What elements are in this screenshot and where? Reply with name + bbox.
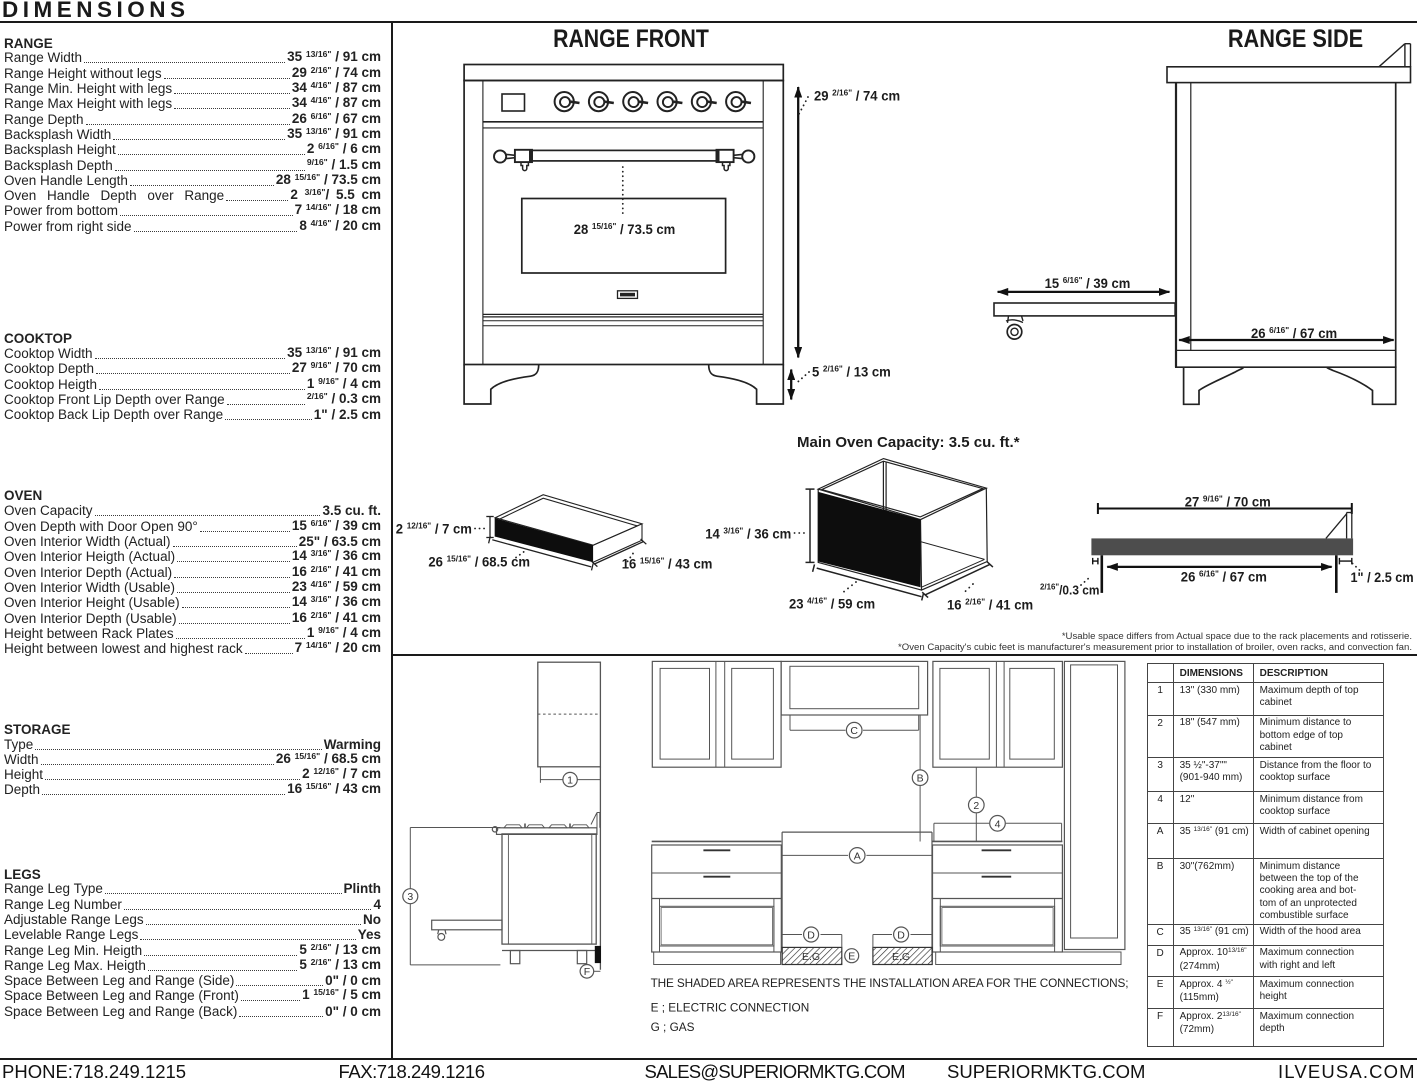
svg-text:Main Oven Capacity: 3.5 cu. ft: Main Oven Capacity: 3.5 cu. ft.* [797,434,1020,451]
svg-text:E.G: E.G [892,951,910,963]
svg-text:RANGE FRONT: RANGE FRONT [553,24,709,52]
svg-text:16 2/16" / 41 cm: 16 2/16" / 41 cm [947,597,1033,613]
svg-text:5 2/16" / 13 cm: 5 2/16" / 13 cm [812,364,891,380]
svg-text:2/16"/0.3 cm: 2/16"/0.3 cm [1040,582,1099,597]
svg-text:A: A [854,850,861,862]
svg-text:G ; GAS: G ; GAS [651,1020,695,1034]
svg-text:THE SHADED AREA REPRESENTS THE: THE SHADED AREA REPRESENTS THE INSTALLAT… [651,976,1129,990]
svg-text:1: 1 [567,774,573,786]
svg-text:D: D [807,929,815,941]
svg-text:15 6/16" / 39 cm: 15 6/16" / 39 cm [1045,275,1131,291]
svg-text:3: 3 [407,891,413,903]
svg-text:29 2/16" / 74 cm: 29 2/16" / 74 cm [814,88,900,104]
svg-text:RANGE SIDE: RANGE SIDE [1228,25,1363,53]
svg-text:16 15/16" / 43 cm: 16 15/16" / 43 cm [622,556,713,572]
svg-text:1" / 2.5 cm: 1" / 2.5 cm [1351,570,1414,585]
svg-text:E.G: E.G [802,951,820,963]
svg-text:E ; ELECTRIC CONNECTION: E ; ELECTRIC CONNECTION [651,1000,810,1014]
svg-text:C: C [850,725,858,737]
svg-text:D: D [897,929,905,941]
svg-text:*Usable space differs from Act: *Usable space differs from Actual space … [1062,631,1412,642]
svg-text:23 4/16" / 59 cm: 23 4/16" / 59 cm [789,596,875,612]
svg-text:26 6/16" / 67 cm: 26 6/16" / 67 cm [1251,325,1337,341]
svg-text:*Oven Capacity's cubic feet is: *Oven Capacity's cubic feet is manufactu… [898,642,1412,653]
svg-text:2 12/16" / 7 cm: 2 12/16" / 7 cm [396,521,472,537]
svg-text:26 6/16" / 67 cm: 26 6/16" / 67 cm [1181,569,1267,585]
svg-text:B: B [917,773,924,785]
svg-text:2: 2 [973,800,979,812]
svg-text:28 15/16" / 73.5 cm: 28 15/16" / 73.5 cm [574,221,676,237]
svg-text:E: E [848,951,855,963]
svg-text:26 15/16" / 68.5 cm: 26 15/16" / 68.5 cm [428,554,530,570]
svg-text:14 3/16" / 36 cm: 14 3/16" / 36 cm [705,526,791,542]
svg-text:4: 4 [995,818,1001,830]
svg-text:27 9/16" / 70 cm: 27 9/16" / 70 cm [1185,494,1271,510]
svg-text:F: F [584,966,590,978]
